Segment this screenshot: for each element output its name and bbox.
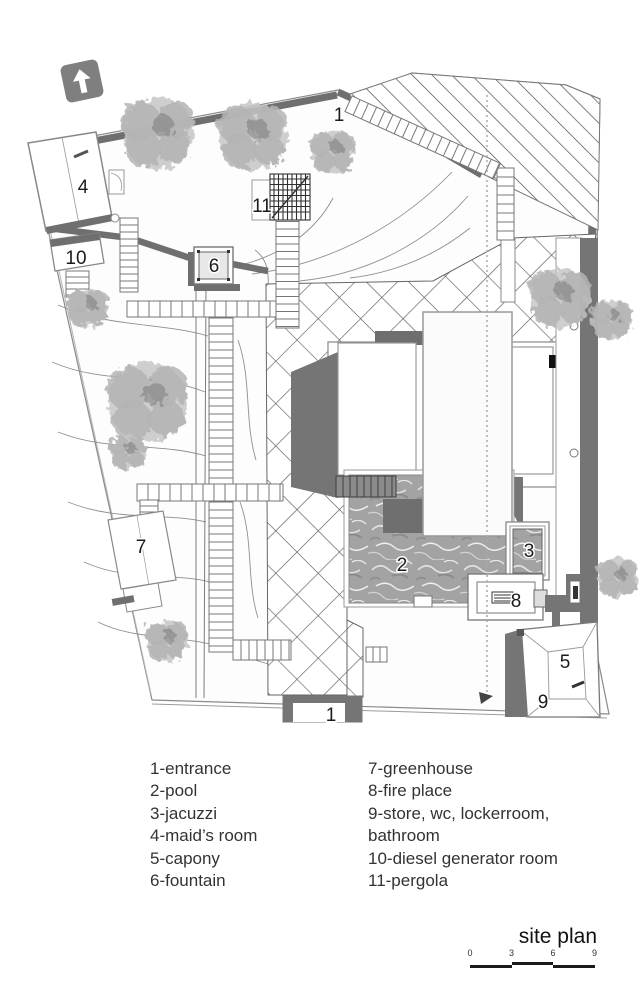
legend-item: 9-store, wc, lockerroom, bathroom [368, 803, 613, 848]
north-arrow-icon [59, 58, 104, 103]
tree [597, 558, 638, 598]
plan-label: 11 [252, 196, 272, 217]
plan-label: 5 [560, 652, 571, 673]
tree [529, 268, 591, 328]
legend-item: 8-fire place [368, 780, 613, 802]
legend-item: 3-jacuzzi [150, 803, 368, 825]
scale-bar-segment [470, 965, 512, 968]
legend: 1-entrance2-pool3-jacuzzi4-maid’s room5-… [150, 758, 613, 892]
tree [217, 102, 287, 170]
entrance-gate [283, 696, 362, 722]
site-plan-page: 14111067238591 1-entrance2-pool3-jacuzzi… [0, 0, 643, 1000]
tree [106, 362, 188, 442]
legend-item: 2-pool [150, 780, 368, 802]
scale-tick: 0 [467, 948, 472, 958]
canopy [505, 622, 600, 717]
scale-bar-segment [553, 965, 595, 968]
plan-label: 2 [397, 555, 408, 576]
plan-label: 1 [334, 105, 345, 126]
legend-item: 5-capony [150, 848, 368, 870]
fireplace [468, 574, 547, 620]
plan-label: 1 [326, 705, 337, 726]
legend-item: 4-maid’s room [150, 825, 368, 847]
tree [145, 620, 188, 662]
tree [120, 97, 194, 169]
plan-label: 7 [136, 537, 147, 558]
tree [109, 434, 146, 470]
page-title: site plan [430, 925, 597, 949]
legend-item: 6-fountain [150, 870, 368, 892]
plan-label: 10 [65, 248, 86, 269]
site-plan-drawing: 14111067238591 [0, 0, 643, 745]
plan-label: 3 [524, 541, 535, 562]
scale-bar-segment [512, 962, 553, 965]
plan-label: 9 [538, 692, 549, 713]
legend-column: 7-greenhouse8-fire place9-store, wc, loc… [368, 758, 613, 892]
roof-slab [423, 312, 512, 536]
tree [67, 288, 108, 328]
tree [310, 130, 355, 174]
plan-label: 8 [511, 591, 522, 612]
legend-item: 7-greenhouse [368, 758, 613, 780]
pool-steps [336, 476, 396, 497]
plan-label: 4 [78, 177, 89, 198]
legend-item: 1-entrance [150, 758, 368, 780]
plan-label: 6 [209, 256, 220, 277]
scale-bar: 0369 [470, 948, 597, 974]
scale-tick: 3 [509, 948, 514, 958]
tree [591, 300, 632, 340]
legend-column: 1-entrance2-pool3-jacuzzi4-maid’s room5-… [150, 758, 368, 892]
legend-item: 11-pergola [368, 870, 613, 892]
scale-tick: 9 [592, 948, 597, 958]
legend-item: 10-diesel generator room [368, 848, 613, 870]
scale-tick: 6 [550, 948, 555, 958]
